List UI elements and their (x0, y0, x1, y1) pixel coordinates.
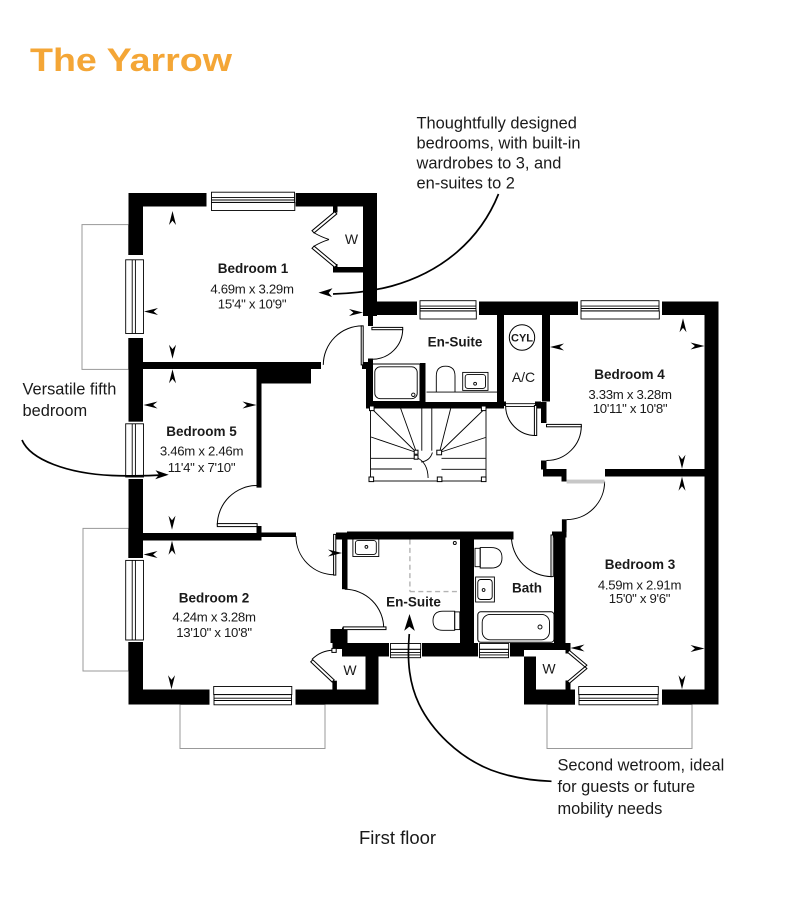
svg-text:15'0" x 9'6": 15'0" x 9'6" (609, 591, 671, 606)
svg-text:3.33m x 3.28m: 3.33m x 3.28m (588, 387, 672, 402)
svg-text:A/C: A/C (512, 369, 535, 385)
svg-text:En-Suite: En-Suite (428, 335, 483, 350)
svg-text:First floor: First floor (359, 827, 436, 848)
svg-text:Bedroom 2: Bedroom 2 (179, 591, 250, 606)
svg-text:4.69m x 3.29m: 4.69m x 3.29m (210, 282, 294, 297)
svg-text:Bedroom 3: Bedroom 3 (605, 557, 676, 572)
svg-text:Bedroom 1: Bedroom 1 (218, 261, 289, 276)
svg-text:En-Suite: En-Suite (386, 595, 441, 610)
svg-text:bedroom: bedroom (23, 402, 88, 420)
svg-text:mobility needs: mobility needs (558, 800, 663, 818)
svg-text:wardrobes to 3, and: wardrobes to 3, and (416, 155, 562, 173)
svg-text:4.24m x 3.28m: 4.24m x 3.28m (172, 610, 256, 625)
svg-text:3.46m x 2.46m: 3.46m x 2.46m (160, 444, 244, 459)
svg-text:Versatile fifth: Versatile fifth (23, 381, 117, 399)
svg-text:Second wetroom, ideal: Second wetroom, ideal (558, 757, 725, 775)
svg-text:for guests or future: for guests or future (558, 778, 696, 796)
svg-text:W: W (542, 660, 556, 676)
svg-text:The Yarrow: The Yarrow (30, 43, 233, 79)
svg-text:W: W (343, 662, 357, 678)
svg-text:bedrooms, with built-in: bedrooms, with built-in (417, 135, 581, 153)
svg-text:10'11" x 10'8": 10'11" x 10'8" (593, 401, 668, 416)
svg-text:W: W (345, 231, 359, 247)
svg-text:en-suites to 2: en-suites to 2 (417, 175, 515, 193)
svg-text:Bath: Bath (512, 581, 542, 596)
svg-text:CYL: CYL (511, 333, 533, 345)
svg-text:13'10" x 10'8": 13'10" x 10'8" (176, 625, 252, 640)
svg-text:11'4" x 7'10": 11'4" x 7'10" (168, 460, 236, 475)
svg-text:Bedroom 5: Bedroom 5 (166, 424, 237, 439)
svg-text:Thoughtfully designed: Thoughtfully designed (417, 115, 577, 133)
svg-text:Bedroom 4: Bedroom 4 (594, 367, 665, 382)
svg-text:15'4" x 10'9": 15'4" x 10'9" (218, 297, 287, 312)
